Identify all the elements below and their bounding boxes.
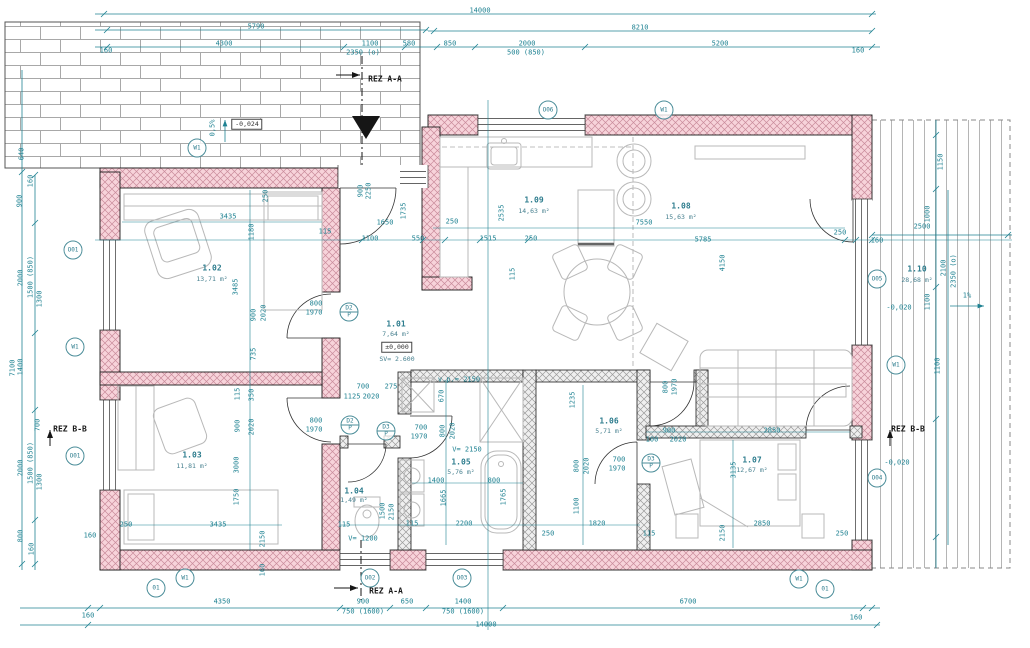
dim-label: 900 (17, 195, 24, 208)
room-area: 5,71 m² (595, 427, 622, 435)
dim-label: 1100 (362, 236, 379, 243)
dim-label: 2100 (941, 260, 948, 277)
slope-label: 0,5% (210, 120, 217, 137)
wall-mark-w1: W1 (188, 139, 207, 158)
bed (124, 490, 278, 544)
window-mark-o01: O01 (66, 447, 85, 466)
dim-label: 250 (446, 219, 459, 226)
dim-label: 2020 (261, 305, 268, 322)
dim-label: 1300 (37, 474, 44, 491)
dim-label: 1750 (234, 489, 241, 506)
armchair (151, 396, 209, 456)
section-label-aa: REZ A-A (369, 587, 403, 596)
dim-label: 115 (338, 522, 351, 529)
dim-label: 1650 (377, 220, 394, 227)
room-number: 1.04 (344, 487, 363, 496)
room-number: 1.02 (202, 264, 221, 273)
nightstand (802, 514, 824, 538)
door-dim: 2250 (366, 183, 373, 200)
dim-label: 3135 (731, 462, 738, 479)
level-marker: -0,020 (886, 305, 911, 312)
dim-label: 7550 (636, 220, 653, 227)
room-number: 1.05 (451, 458, 470, 467)
dim-label: 2000 (519, 41, 536, 48)
dim-label: 650 (401, 599, 414, 606)
dim-label: 1235 (570, 392, 577, 409)
dim-label: 115 (319, 229, 332, 236)
dim-label: 800 (440, 425, 447, 438)
dim-label: 580 (403, 41, 416, 48)
door-dim: 1970 (306, 427, 323, 434)
room-area: 5,76 m² (447, 468, 474, 476)
dim-label: 1180 (249, 224, 256, 241)
dim-label: 250 (834, 230, 847, 237)
dim-label: 7100 (10, 360, 17, 377)
dim-label: 1125 (344, 394, 361, 401)
section-label-bb: REZ B-B (53, 425, 87, 434)
level-marker: ±0,000 (381, 342, 412, 353)
floor-plan-canvas: 14000 5790 8210 4300 1100 580 2350 (o) 1… (0, 0, 1030, 648)
room-number: 1.08 (671, 202, 690, 211)
dim-label: 735 (251, 348, 258, 361)
plant (617, 182, 651, 216)
kitchen-counter (440, 137, 592, 277)
room-area: 15,63 m² (665, 213, 696, 221)
dim-label: 550 (412, 236, 425, 243)
dim-label: 1765 (501, 489, 508, 506)
dim-label: 160 (84, 533, 97, 540)
mark-o1: 01 (816, 580, 835, 599)
door-mark-d2p: D2P (341, 416, 360, 435)
dim-label: 2000 (18, 270, 25, 287)
dim-label: 160 (28, 175, 35, 188)
dim-label: 115 (406, 521, 419, 528)
slope-label: 1% (963, 293, 971, 300)
door-hinge: P (341, 312, 358, 319)
dim-label: 640 (19, 148, 26, 161)
door-hinge: P (378, 431, 395, 438)
window-mark-o01: O01 (64, 241, 83, 260)
dim-label: 900 (663, 428, 676, 435)
dim-label: 2150 (389, 504, 396, 521)
sofa (700, 350, 852, 426)
door-dim: 1970 (672, 379, 679, 396)
dim-label: 900 (235, 420, 242, 433)
dim-label: 160 (260, 564, 267, 577)
room-area: 12,67 m² (736, 466, 767, 474)
dim-label: 3435 (220, 214, 237, 221)
side-table (662, 459, 704, 515)
dim-label: 4300 (216, 41, 233, 48)
room-number: 1.03 (182, 451, 201, 460)
room-number: 1.01 (386, 320, 405, 329)
dim-label: 5200 (712, 41, 729, 48)
door-dim: 800 (663, 381, 670, 394)
room-area: 13,71 m² (196, 275, 227, 283)
wall-mark-w1: W1 (655, 101, 674, 120)
dim-label: 2150 (260, 531, 267, 548)
window-mark-o04: O04 (868, 469, 887, 488)
floor-plan-drawing (0, 0, 1030, 648)
door-mark-d3p: D3P (377, 422, 396, 441)
dim-label: 1665 (441, 490, 448, 507)
dim-label: 14000 (475, 622, 496, 629)
dim-label: 1100 (925, 294, 932, 311)
dim-label: 250 (525, 236, 538, 243)
dim-label: 8210 (632, 25, 649, 32)
dim-label: 3000 (234, 457, 241, 474)
dim-label: 160 (29, 543, 36, 556)
door-dim: 800 (310, 301, 323, 308)
dim-label: 750 (1600) (442, 609, 484, 616)
room-number: 1.09 (524, 196, 543, 205)
dim-label: 160 (871, 238, 884, 245)
dim-label: 2200 (456, 521, 473, 528)
dashed-lines (442, 137, 633, 368)
wall-mark-w1: W1 (790, 570, 809, 589)
dim-label: 160 (850, 615, 863, 622)
wall-mark-w1: W1 (887, 356, 906, 375)
window-mark-o06: O06 (539, 101, 558, 120)
room-number: 1.06 (599, 417, 618, 426)
terrace-deck (872, 120, 1010, 568)
dim-label: 1400 (428, 478, 445, 485)
nightstand (676, 514, 698, 538)
dim-label: 1000 (925, 206, 932, 223)
door-dim: 1970 (411, 434, 428, 441)
dim-label: 2020 (584, 458, 591, 475)
window-mark-o05: O05 (868, 270, 887, 289)
dim-label: 1100 (574, 498, 581, 515)
tv-board (695, 146, 805, 159)
dim-label: 500 (850) (507, 50, 545, 57)
dim-label: 670 (439, 390, 446, 403)
dim-label: 1150 (938, 154, 945, 171)
dim-label: 250 (263, 190, 270, 203)
door-dim: 1970 (609, 466, 626, 473)
dim-label: 5785 (695, 237, 712, 244)
level-marker: V= 1200 (348, 536, 378, 543)
dim-label: 1500 (850) (28, 442, 35, 484)
dim-label: 115 (510, 268, 517, 281)
dim-label: 2350 (o) (346, 50, 380, 57)
double-bed (700, 440, 800, 526)
level-marker: v.p.= 2150 (438, 377, 480, 384)
dim-label: 1500 (380, 503, 387, 520)
plant (617, 144, 651, 178)
bed (264, 192, 322, 310)
dim-label: 115 (235, 388, 242, 401)
shower-enclosure (480, 378, 523, 442)
dim-label: 3485 (233, 279, 240, 296)
room-number: 1.10 (907, 265, 926, 274)
window-mark-o03: O03 (453, 569, 472, 588)
dim-label: 350 (249, 389, 256, 402)
dim-label: 700 (35, 419, 42, 432)
dim-label: 3435 (210, 522, 227, 529)
dim-label: 14000 (469, 8, 490, 15)
dining-table (564, 259, 630, 325)
dim-label: 1735 (401, 203, 408, 220)
level-marker: V= 2150 (452, 447, 482, 454)
mark-o1: 01 (147, 579, 166, 598)
door-dim: 1970 (306, 310, 323, 317)
room-area: 7,64 m² (382, 330, 409, 338)
wall-mark-w1: W1 (176, 569, 195, 588)
dim-label: 2350 (o) (951, 254, 958, 288)
dim-label: 2535 (499, 205, 506, 222)
dim-label: 2020 (363, 394, 380, 401)
dim-label: 700 (357, 384, 370, 391)
dim-label: 100 (646, 437, 659, 444)
dim-label: 5790 (248, 24, 265, 31)
dim-label: 750 (1600) (342, 609, 384, 616)
dim-label: 1820 (589, 521, 606, 528)
side-table (640, 323, 688, 370)
wall-mark-w1: W1 (66, 338, 85, 357)
room-height: SV= 2.600 (379, 355, 414, 363)
section-label-bb: REZ B-B (891, 425, 925, 434)
door-hinge: P (342, 425, 359, 432)
chair (551, 304, 588, 341)
dim-label: 800 (488, 478, 501, 485)
dim-label: 115 (643, 531, 656, 538)
dim-label: 2850 (764, 428, 781, 435)
dim-label: 160 (100, 48, 113, 55)
dim-label: 1100 (935, 358, 942, 375)
dim-label: 2020 (450, 423, 457, 440)
door-dim: 800 (310, 418, 323, 425)
dim-label: 1400 (18, 359, 25, 376)
dim-label: 900 (357, 599, 370, 606)
room-area: 28,68 m² (901, 276, 932, 284)
dim-label: 1515 (480, 236, 497, 243)
level-marker: -0,024 (231, 119, 262, 130)
dim-label: 4350 (214, 599, 231, 606)
dim-label: 2850 (754, 521, 771, 528)
paved-area (5, 22, 420, 168)
room-area: 11,81 m² (176, 462, 207, 470)
dim-label: 2150 (720, 525, 727, 542)
dim-label: 2000 (18, 460, 25, 477)
dim-label: 800 (18, 530, 25, 543)
kitchen-island (578, 190, 614, 246)
dim-label: 1300 (37, 291, 44, 308)
dim-label: 160 (82, 613, 95, 620)
section-label-aa: REZ A-A (368, 75, 402, 84)
dim-label: 2020 (670, 437, 687, 444)
dim-label: 250 (836, 531, 849, 538)
dim-label: 160 (852, 48, 865, 55)
door-dim: 700 (415, 425, 428, 432)
door-dim: 900 (358, 185, 365, 198)
door-hinge: P (643, 463, 660, 470)
level-marker: -0,020 (884, 460, 909, 467)
dim-label: 2500 (914, 224, 931, 231)
dim-label: 275 (385, 384, 398, 391)
dim-label: 2020 (249, 419, 256, 436)
dim-label: 800 (574, 460, 581, 473)
dim-label: 6700 (680, 599, 697, 606)
room-number: 1.07 (742, 456, 761, 465)
room-area: 14,63 m² (518, 207, 549, 215)
kitchen-sink (487, 139, 521, 170)
exterior-walls (100, 115, 872, 570)
dim-label: 250 (542, 531, 555, 538)
dim-label: 900 (251, 309, 258, 322)
dim-label: 1100 (362, 41, 379, 48)
room-area: 1,49 m² (340, 496, 367, 504)
window-mark-o02: O02 (361, 569, 380, 588)
door-mark-d3p: D3P (642, 454, 661, 473)
door-dim: 700 (613, 457, 626, 464)
closet (700, 384, 846, 397)
dim-label: 250 (120, 522, 133, 529)
dim-label: 1500 (850) (28, 256, 35, 298)
door-mark-d2p: D2P (340, 303, 359, 322)
dim-label: 850 (444, 41, 457, 48)
dim-label: 4150 (720, 255, 727, 272)
dim-label: 1400 (455, 599, 472, 606)
